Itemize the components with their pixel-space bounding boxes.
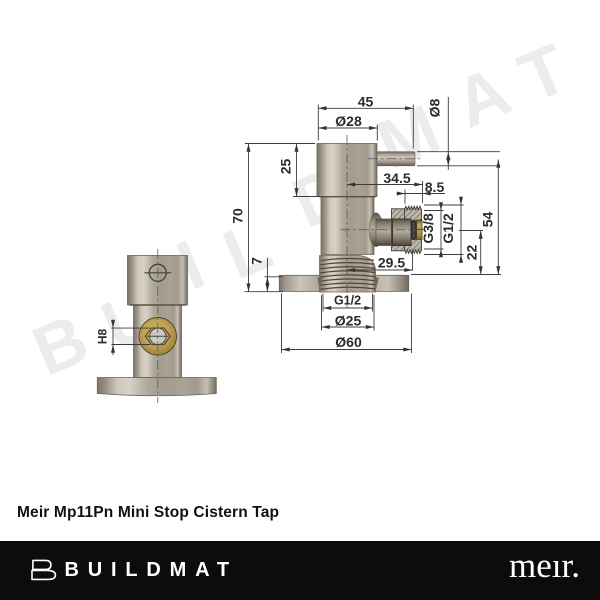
svg-text:G1/2: G1/2 xyxy=(440,213,456,244)
svg-text:Ø25: Ø25 xyxy=(335,313,362,329)
svg-text:7: 7 xyxy=(249,257,265,265)
svg-text:Ø60: Ø60 xyxy=(335,334,362,350)
svg-text:B: B xyxy=(22,299,99,391)
svg-text:T: T xyxy=(508,29,578,118)
svg-text:G3/8: G3/8 xyxy=(420,213,436,244)
svg-text:Ø28: Ø28 xyxy=(335,113,362,129)
svg-text:A: A xyxy=(444,51,521,143)
svg-text:8.5: 8.5 xyxy=(425,179,445,195)
svg-text:G1/2: G1/2 xyxy=(334,294,361,308)
svg-text:54: 54 xyxy=(480,212,496,228)
svg-text:H8: H8 xyxy=(96,329,110,345)
svg-text:29.5: 29.5 xyxy=(378,255,405,271)
svg-text:22: 22 xyxy=(464,245,480,261)
svg-text:L: L xyxy=(212,206,282,295)
svg-text:25: 25 xyxy=(278,159,294,175)
svg-text:45: 45 xyxy=(358,94,374,110)
svg-text:34.5: 34.5 xyxy=(383,170,410,186)
svg-text:70: 70 xyxy=(230,208,246,224)
svg-text:Ø8: Ø8 xyxy=(427,98,443,117)
